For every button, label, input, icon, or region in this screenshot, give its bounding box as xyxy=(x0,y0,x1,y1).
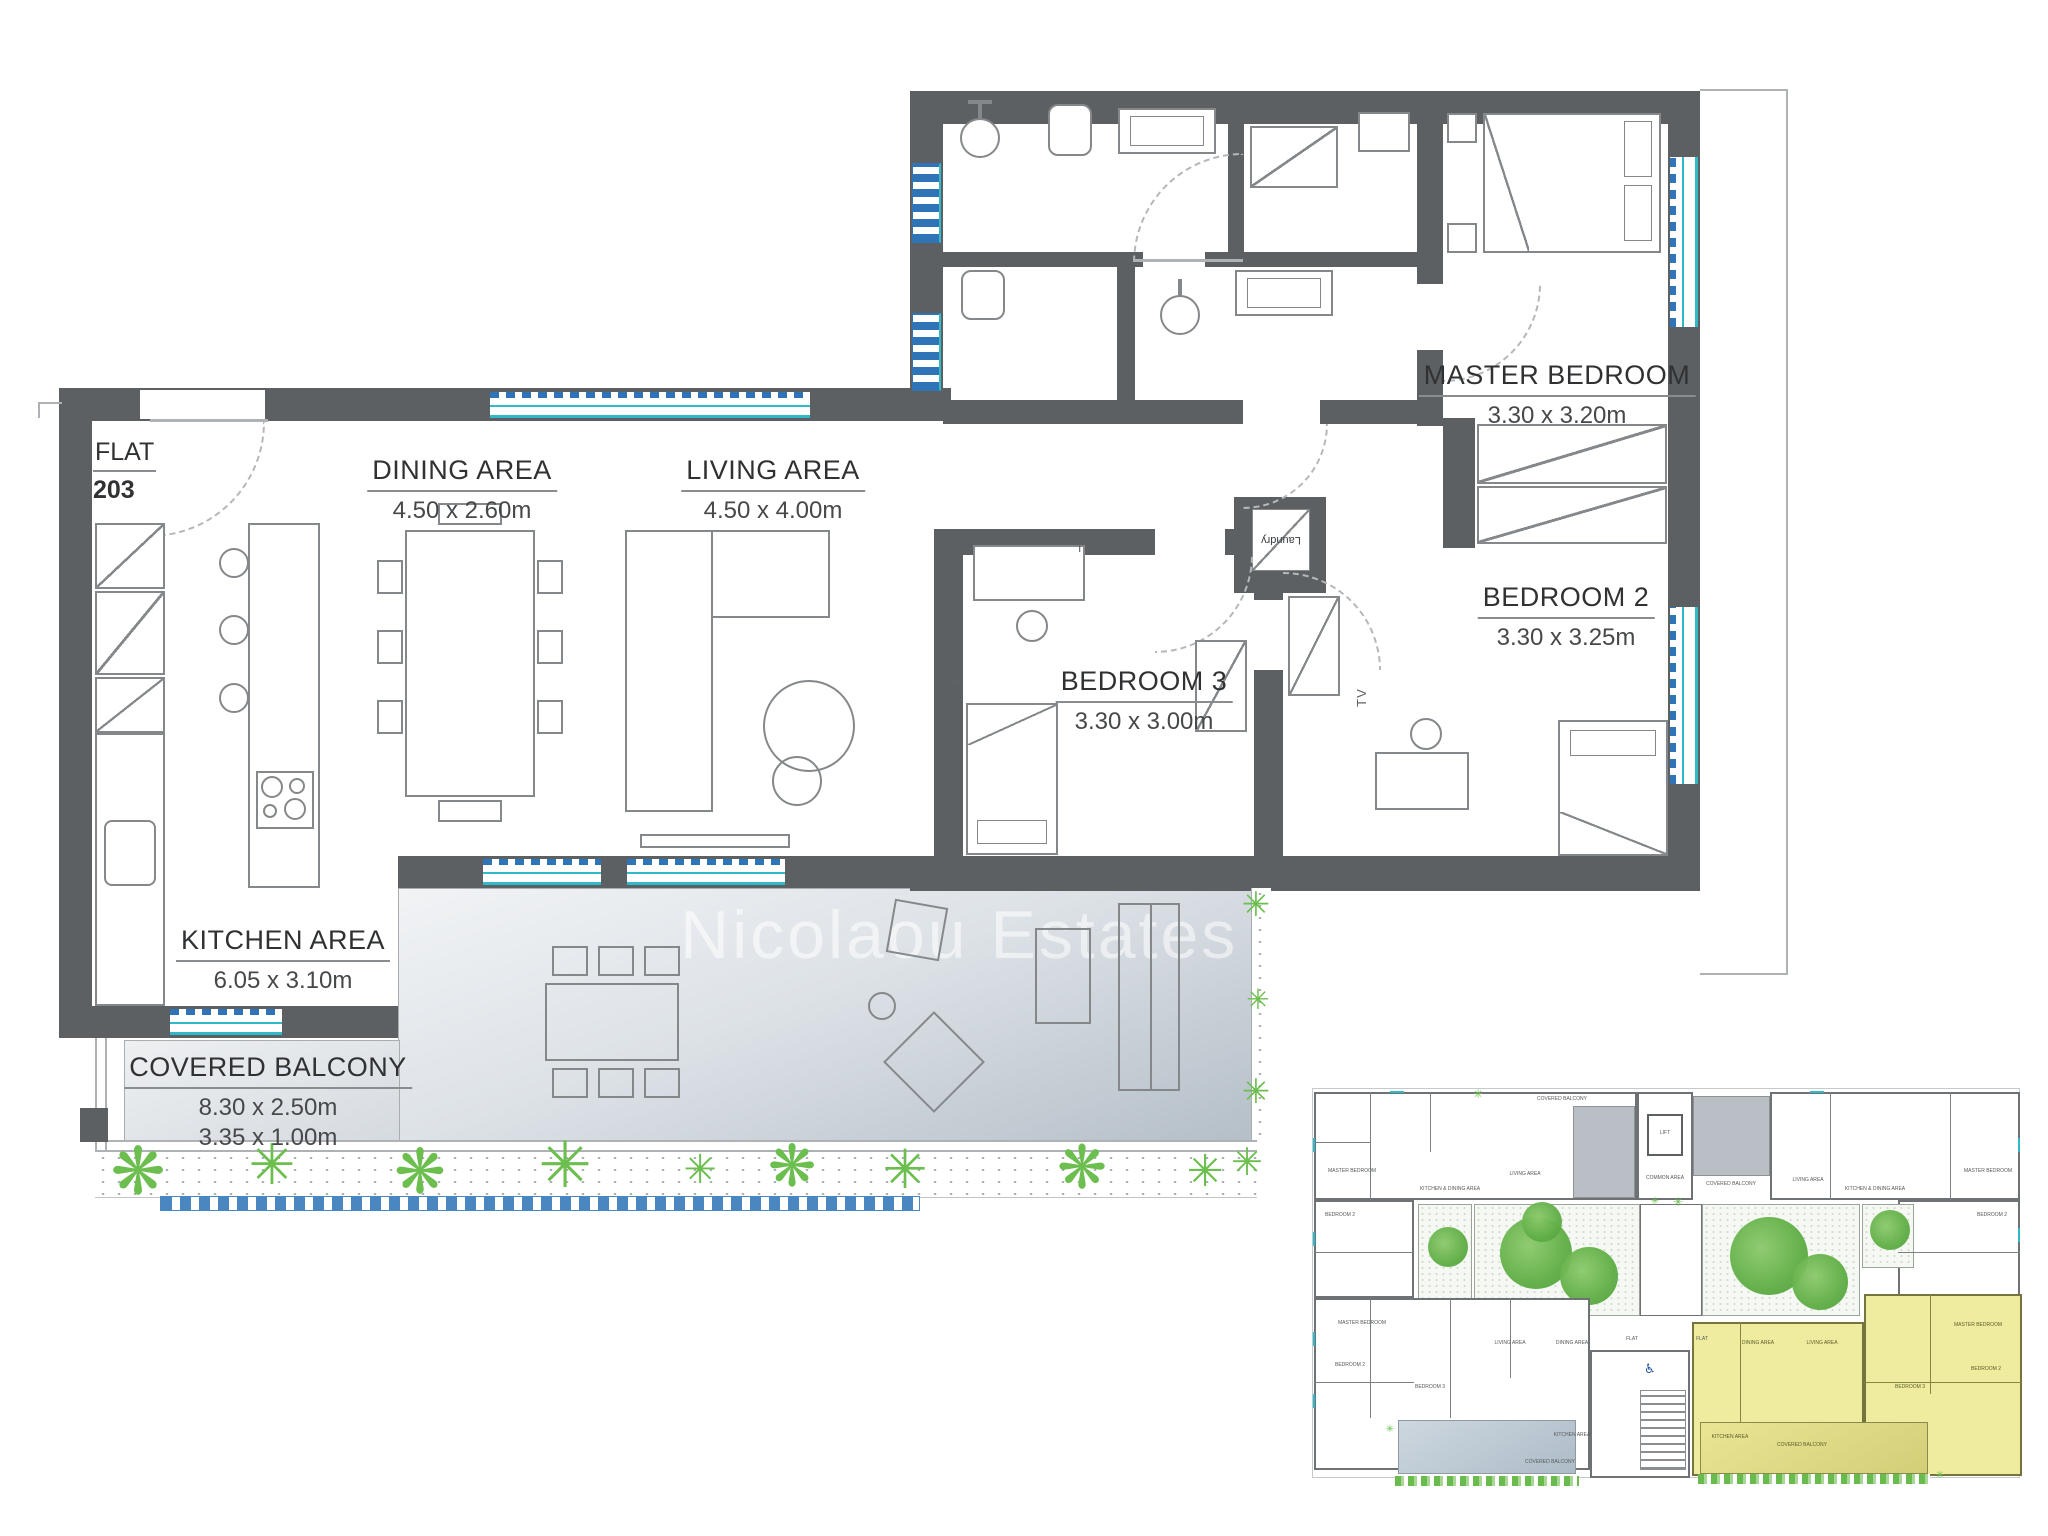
key-plan-label: MASTER BEDROOM xyxy=(1338,1320,1386,1326)
nightstand xyxy=(1447,113,1477,143)
window xyxy=(912,313,941,391)
tv-unit xyxy=(640,834,790,848)
wall xyxy=(910,856,1700,891)
key-plan-label: BEDROOM 2 xyxy=(1325,1212,1355,1218)
wall xyxy=(943,400,1243,424)
window xyxy=(483,859,601,885)
key-plan-window-tick xyxy=(1313,1332,1315,1346)
key-plan-stairs xyxy=(1640,1390,1686,1470)
plant-icon: ✳ xyxy=(1246,986,1269,1014)
plant-icon: ✳ xyxy=(683,1150,717,1190)
outdoor-sofa-line xyxy=(1150,905,1152,1089)
nightstand xyxy=(1447,223,1477,253)
key-plan-label: BEDROOM 3 xyxy=(1415,1384,1445,1390)
room-label-balcony: COVERED BALCONY 8.30 x 2.50m 3.35 x 1.00… xyxy=(124,1052,412,1152)
room-name: LIVING AREA xyxy=(681,455,865,492)
dining-chair xyxy=(537,560,563,594)
tree-icon xyxy=(1870,1210,1910,1250)
key-plan-label: DINING AREA xyxy=(1556,1340,1588,1346)
key-plan: ♿ ✳ ✳ ✳ ✳ ✳ COVE xyxy=(1310,1082,2046,1532)
key-plan-window-tick xyxy=(1313,1138,1315,1152)
sofa-section xyxy=(625,530,713,812)
flat-label-word: FLAT xyxy=(93,438,156,472)
plant-icon: ✳ xyxy=(1473,1088,1483,1100)
kitchen-sink xyxy=(104,820,156,886)
key-plan-wall-line xyxy=(1370,1298,1371,1418)
window xyxy=(1670,607,1698,784)
room-dims: 4.50 x 2.60m xyxy=(367,497,557,525)
sliding-door xyxy=(627,859,785,885)
desk xyxy=(973,545,1085,601)
bar-stool xyxy=(219,615,249,645)
plant-icon: ✳ xyxy=(1231,1143,1263,1181)
room-label-bedroom-2: BEDROOM 2 3.30 x 3.25m xyxy=(1478,582,1655,652)
dining-chair xyxy=(537,700,563,734)
key-plan-label: MASTER BEDROOM xyxy=(1964,1168,2012,1174)
key-plan-label: FLAT xyxy=(1696,1336,1708,1342)
plant-icon: ✳ xyxy=(1651,1197,1659,1207)
key-plan-wall-line xyxy=(1450,1298,1451,1418)
toilet xyxy=(1048,104,1092,156)
key-plan-label: FLAT xyxy=(1626,1336,1638,1342)
pillow xyxy=(977,820,1047,844)
key-plan-label: BEDROOM 2 xyxy=(1971,1366,2001,1372)
room-name: BEDROOM 3 xyxy=(1056,666,1233,703)
key-plan-balcony-blue xyxy=(1398,1420,1576,1474)
shower-drain xyxy=(960,118,1000,158)
room-label-bedroom-3: BEDROOM 3 3.30 x 3.00m xyxy=(1056,666,1233,736)
dining-chair xyxy=(438,800,502,822)
key-plan-wall-line xyxy=(1864,1382,2022,1383)
key-plan-wall-line xyxy=(1370,1092,1371,1200)
wall xyxy=(59,388,92,1038)
key-plan-balcony-yellow xyxy=(1700,1422,1928,1474)
room-dims: 8.30 x 2.50m xyxy=(124,1094,412,1122)
desk-chair xyxy=(1410,718,1442,750)
bed-fold xyxy=(1485,115,1529,251)
key-plan-label: MASTER BEDROOM xyxy=(1954,1322,2002,1328)
dining-chair xyxy=(377,630,403,664)
key-plan-wall-line xyxy=(1930,1294,1931,1394)
key-plan-label: BEDROOM 2 xyxy=(1335,1362,1365,1368)
key-plan-wall-line xyxy=(1314,1382,1414,1383)
key-plan-wall-line xyxy=(1830,1092,1831,1200)
outdoor-cabinet xyxy=(1035,928,1091,1024)
key-plan-label: KITCHEN AREA xyxy=(1554,1432,1591,1438)
key-plan-wall-line xyxy=(1950,1092,1951,1200)
room-dims: 3.30 x 3.20m xyxy=(1419,402,1696,430)
key-plan-label: LIVING AREA xyxy=(1509,1171,1540,1177)
wall xyxy=(1117,267,1135,400)
room-label-dining: DINING AREA 4.50 x 2.60m xyxy=(367,455,557,525)
dining-chair xyxy=(377,560,403,594)
key-plan-wall-line xyxy=(1510,1298,1511,1378)
dining-table xyxy=(405,530,535,797)
dining-chair xyxy=(537,630,563,664)
key-plan-label: COVERED BALCONY xyxy=(1777,1442,1827,1448)
bathroom-sink-basin xyxy=(1130,116,1204,146)
floor-plan-page: Nicolaou Estates Laundry xyxy=(0,0,2048,1536)
flat-label: FLAT 203 xyxy=(93,438,156,505)
toilet xyxy=(961,270,1005,320)
key-plan-wall-line xyxy=(1314,1142,1370,1143)
kitchen-island xyxy=(248,523,320,888)
entrance-door-gap xyxy=(140,390,265,419)
wardrobe xyxy=(1288,596,1340,696)
plant-icon: ✳ xyxy=(1936,1471,1944,1481)
shower-enclosure xyxy=(1250,126,1338,188)
exterior-step-line xyxy=(38,402,40,418)
room-label-master-bedroom: MASTER BEDROOM 3.30 x 3.20m xyxy=(1419,360,1696,430)
key-plan-window-tick xyxy=(1313,1394,1315,1408)
sofa-divider xyxy=(711,532,713,616)
key-plan-plant-strip xyxy=(1395,1476,1579,1486)
window xyxy=(1670,157,1698,327)
bed-fold xyxy=(968,705,1056,745)
boundary-line xyxy=(1700,973,1786,975)
outdoor-chair xyxy=(598,1068,634,1098)
wardrobe xyxy=(1477,486,1667,544)
bed-fold xyxy=(1560,812,1666,854)
key-plan-wall-line xyxy=(1898,1252,2020,1253)
outdoor-chair xyxy=(552,946,588,976)
room-name: BEDROOM 2 xyxy=(1478,582,1655,619)
dining-chair xyxy=(377,700,403,734)
wall xyxy=(1320,400,1417,424)
room-label-living: LIVING AREA 4.50 x 4.00m xyxy=(681,455,865,525)
wardrobe xyxy=(1477,424,1667,484)
outdoor-chair xyxy=(552,1068,588,1098)
bar-stool xyxy=(219,683,249,713)
key-plan-label: LIFT xyxy=(1660,1130,1670,1136)
kitchen-cabinet xyxy=(95,677,165,733)
laundry-label: Laundry xyxy=(1261,534,1301,546)
shower-arm xyxy=(1178,279,1182,297)
tree-icon xyxy=(1560,1247,1618,1305)
bathroom-sink xyxy=(1358,112,1410,152)
key-plan-balcony-gray xyxy=(1693,1096,1770,1176)
tv-label: TV xyxy=(1076,541,1093,555)
window xyxy=(170,1009,282,1035)
plant-icon: ✳ xyxy=(538,1134,592,1198)
wall xyxy=(1254,670,1283,856)
side-table xyxy=(772,756,822,806)
key-plan-window-tick xyxy=(1810,1091,1824,1093)
pillow xyxy=(1624,121,1652,177)
key-plan-label: COVERED BALCONY xyxy=(1706,1181,1756,1187)
desk-chair xyxy=(1016,610,1048,642)
outdoor-armchair xyxy=(886,899,949,962)
wall xyxy=(1443,418,1475,548)
shower-arm xyxy=(978,102,982,120)
key-plan-window-tick xyxy=(1390,1091,1404,1093)
kitchen-cabinet xyxy=(95,523,165,589)
exterior-step-line xyxy=(38,402,62,404)
door-arc xyxy=(1133,153,1243,263)
key-plan-label: COMMON AREA xyxy=(1646,1175,1684,1181)
room-name: COVERED BALCONY xyxy=(124,1052,412,1089)
desk xyxy=(1375,752,1469,810)
key-plan-window-tick xyxy=(2018,1228,2020,1242)
key-plan-label: COVERED BALCONY xyxy=(1525,1459,1575,1465)
cooktop-burner xyxy=(284,798,306,820)
plant-icon: ❋ xyxy=(1057,1138,1107,1198)
room-name: DINING AREA xyxy=(367,455,557,492)
tree-icon xyxy=(1792,1254,1848,1310)
bar-stool xyxy=(219,548,249,578)
plant-icon: ✳ xyxy=(1673,1196,1683,1208)
door-leaf xyxy=(1133,259,1243,262)
wall-stub xyxy=(80,1108,108,1142)
pillow xyxy=(1570,730,1656,756)
key-plan-wall-line xyxy=(1430,1092,1431,1152)
outdoor-chair xyxy=(644,946,680,976)
shower-drain xyxy=(1160,295,1200,335)
kitchen-cabinet xyxy=(95,591,165,675)
key-plan-window-tick xyxy=(1313,1232,1315,1246)
flat-number: 203 xyxy=(93,476,156,505)
cooktop-burner xyxy=(289,778,305,794)
window xyxy=(490,392,810,418)
tv-label: TV xyxy=(1354,688,1369,707)
room-dims: 4.50 x 4.00m xyxy=(681,497,865,525)
key-plan-label: LIVING AREA xyxy=(1792,1177,1823,1183)
plant-icon: ✳ xyxy=(1187,1150,1224,1194)
cooktop-burner xyxy=(263,804,277,818)
boundary-line xyxy=(1786,89,1788,975)
wall xyxy=(943,252,1143,267)
window xyxy=(912,163,941,243)
key-plan-label: KITCHEN & DINING AREA xyxy=(1845,1186,1905,1192)
key-plan-label: COVERED BALCONY xyxy=(1537,1096,1587,1102)
pillow xyxy=(1624,185,1652,241)
room-name: MASTER BEDROOM xyxy=(1419,360,1696,397)
wall xyxy=(934,529,963,856)
wheelchair-icon: ♿ xyxy=(1644,1362,1656,1377)
wall xyxy=(1417,124,1443,284)
shower-bar xyxy=(968,100,992,104)
key-plan-core xyxy=(1640,1204,1702,1316)
key-plan-label: MASTER BEDROOM xyxy=(1328,1168,1376,1174)
key-plan-wall-line xyxy=(1740,1322,1741,1422)
entrance-door-arc xyxy=(150,422,265,537)
tree-icon xyxy=(1522,1202,1562,1242)
door-arc xyxy=(1155,555,1253,653)
key-plan-label: BEDROOM 2 xyxy=(1977,1212,2007,1218)
key-plan-label: BEDROOM 3 xyxy=(1895,1384,1925,1390)
boundary-line xyxy=(1700,89,1788,91)
tree-icon xyxy=(1428,1227,1468,1267)
key-plan-label: LIVING AREA xyxy=(1494,1340,1525,1346)
key-plan-window-tick xyxy=(2018,1138,2020,1152)
room-dims: 6.05 x 3.10m xyxy=(176,967,390,995)
plant-icon: ✳ xyxy=(882,1143,927,1197)
key-plan-label: KITCHEN AREA xyxy=(1712,1434,1749,1440)
key-plan-label: KITCHEN & DINING AREA xyxy=(1420,1186,1480,1192)
plant-icon: ✳ xyxy=(1242,888,1271,922)
room-label-kitchen: KITCHEN AREA 6.05 x 3.10m xyxy=(176,925,390,995)
outdoor-sofa xyxy=(1118,903,1180,1091)
room-name: KITCHEN AREA xyxy=(176,925,390,962)
key-plan-label: DINING AREA xyxy=(1742,1340,1774,1346)
key-plan-balcony-gray xyxy=(1573,1106,1635,1198)
key-plan-flat xyxy=(1770,1092,2020,1200)
outdoor-side-table xyxy=(868,992,896,1020)
plant-icon: ✳ xyxy=(1242,1075,1271,1109)
key-plan-label: LIVING AREA xyxy=(1806,1340,1837,1346)
tv-label: TV xyxy=(949,666,964,685)
room-dims: 3.30 x 3.25m xyxy=(1478,624,1655,652)
room-dims: 3.35 x 1.00m xyxy=(124,1124,412,1152)
room-dims: 3.30 x 3.00m xyxy=(1056,708,1233,736)
plant-icon: ❋ xyxy=(768,1137,817,1195)
cooktop-burner xyxy=(261,776,283,798)
bathroom-sink-basin xyxy=(1247,278,1321,308)
plant-icon: ✳ xyxy=(1386,1425,1394,1435)
key-plan-plant-strip xyxy=(1698,1474,1930,1484)
key-plan-wall-line xyxy=(1314,1252,1414,1253)
outdoor-table xyxy=(545,983,679,1061)
outdoor-chair xyxy=(598,946,634,976)
outdoor-chair xyxy=(644,1068,680,1098)
